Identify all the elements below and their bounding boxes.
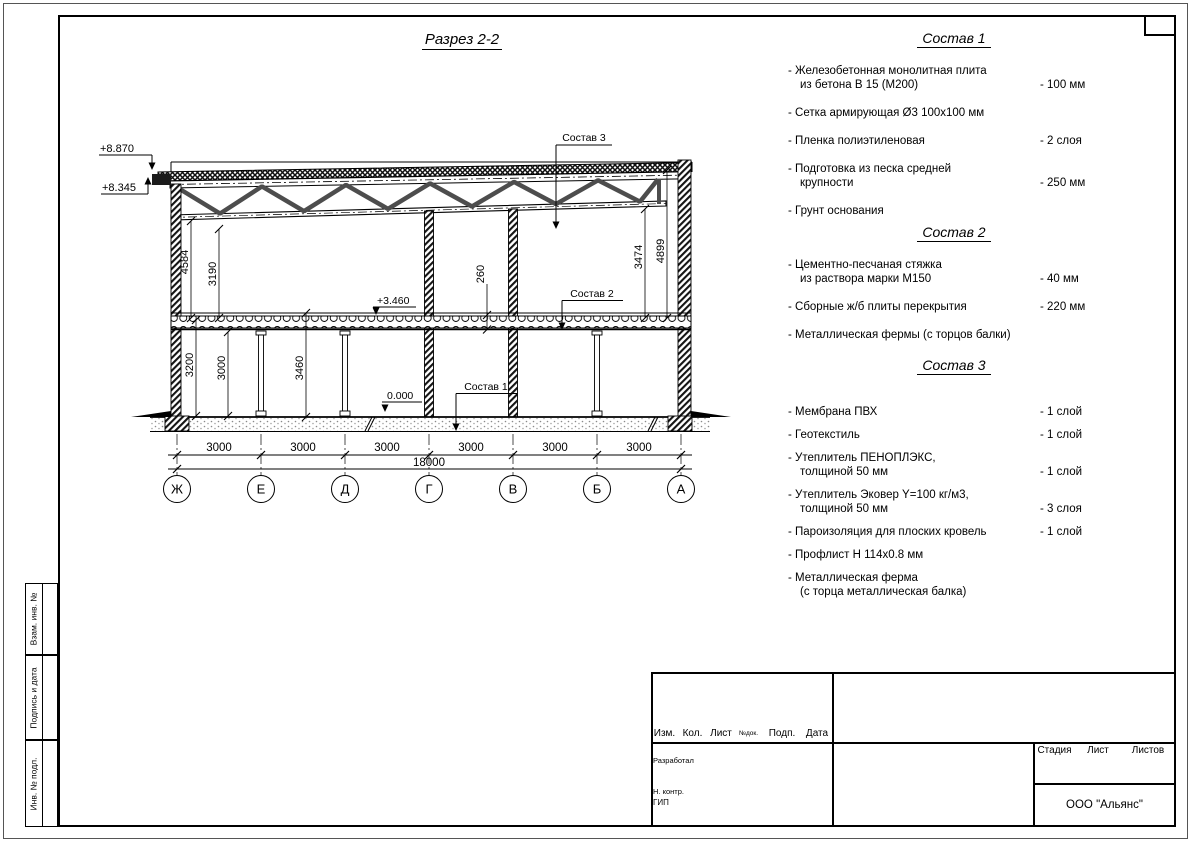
elevation-3460: +3.460 bbox=[377, 295, 410, 307]
span-dim: 3000 bbox=[458, 442, 484, 454]
total-span-dim: 18000 bbox=[413, 457, 445, 469]
drawing-sheet: Разрез 2-2 bbox=[0, 0, 1191, 842]
axis-label: Ж bbox=[171, 482, 183, 497]
dim-3000: 3000 bbox=[216, 356, 228, 380]
list-item: - Цементно-песчаная стяжкаиз раствора ма… bbox=[788, 258, 1120, 286]
list-item: - Сетка армирующая Ø3 100х100 мм bbox=[788, 106, 1120, 120]
span-dim: 3000 bbox=[290, 442, 316, 454]
span-dim: 3000 bbox=[542, 442, 568, 454]
list-item: - Подготовка из песка среднейкрупности -… bbox=[788, 162, 1120, 190]
list-item: - Грунт основания bbox=[788, 204, 1120, 218]
side-strip-label: Подпись и дата bbox=[25, 655, 42, 740]
composition-3: Состав 3 - Мембрана ПВХ - 1 слой - Геоте… bbox=[788, 357, 1120, 608]
sheets-col: Листов bbox=[1120, 742, 1176, 758]
rev-col-ndok: №док. bbox=[735, 725, 762, 742]
rev-col-podp: Подп. bbox=[762, 725, 802, 742]
composition-2: Состав 2 - Цементно-песчаная стяжкаиз ра… bbox=[788, 224, 1120, 356]
composition-1-title: Состав 1 bbox=[788, 30, 1120, 48]
list-item: - Утеплитель Эковер Y=100 кг/м3,толщиной… bbox=[788, 488, 1120, 516]
axis-label: Г bbox=[425, 482, 432, 497]
axis-label: Д bbox=[341, 482, 350, 497]
elevation-8870: +8.870 bbox=[100, 143, 134, 155]
axis-label: В bbox=[509, 482, 518, 497]
composition-3-title: Состав 3 bbox=[788, 357, 1120, 375]
list-item: - Пароизоляция для плоских кровель - 1 с… bbox=[788, 525, 1120, 539]
list-item: - Металлическая фермы (с торцов балки) bbox=[788, 328, 1120, 342]
company-name: ООО "Альянс" bbox=[1033, 784, 1176, 826]
composition-1: Состав 1 - Железобетонная монолитная пли… bbox=[788, 30, 1120, 232]
dim-3190: 3190 bbox=[207, 262, 219, 286]
side-strip-label: Инв. № подл. bbox=[25, 740, 42, 827]
axis-label: Б bbox=[593, 482, 602, 497]
list-item: - Профлист Н 114х0.8 мм bbox=[788, 548, 1120, 562]
rev-col-kol: Кол. bbox=[678, 725, 707, 742]
elevation-0000: 0.000 bbox=[387, 390, 413, 402]
span-dim: 3000 bbox=[206, 442, 232, 454]
list-item: - Сборные ж/б плиты перекрытия - 220 мм bbox=[788, 300, 1120, 314]
list-item: - Пленка полиэтиленовая - 2 слоя bbox=[788, 134, 1120, 148]
list-item: - Утеплитель ПЕНОПЛЭКС,толщиной 50 мм - … bbox=[788, 451, 1120, 479]
role-gip: ГИП bbox=[653, 797, 705, 808]
sheet-col: Лист bbox=[1076, 742, 1120, 758]
list-item: - Железобетонная монолитная плитаиз бето… bbox=[788, 64, 1120, 92]
role-developer: Разработал bbox=[653, 753, 705, 767]
list-item: - Геотекстиль - 1 слой bbox=[788, 428, 1120, 442]
dim-3474: 3474 bbox=[633, 245, 645, 269]
list-item: - Металлическая ферма(с торца металличес… bbox=[788, 571, 1120, 599]
elevation-8345: +8.345 bbox=[102, 182, 136, 194]
role-ncontrol: Н. контр. bbox=[653, 786, 705, 797]
axis-label: Е bbox=[257, 482, 266, 497]
dim-260: 260 bbox=[475, 265, 487, 283]
list-item: - Мембрана ПВХ - 1 слой bbox=[788, 405, 1120, 419]
leader-sostav3: Состав 3 bbox=[562, 132, 606, 144]
rev-col-data: Дата bbox=[802, 725, 832, 742]
stage-col: Стадия bbox=[1033, 742, 1076, 758]
side-strip-label: Взам. инв. № bbox=[25, 583, 42, 655]
leader-sostav1: Состав 1 bbox=[464, 381, 508, 393]
dim-3200: 3200 bbox=[184, 353, 196, 377]
dim-4899: 4899 bbox=[655, 239, 667, 263]
span-dim: 3000 bbox=[626, 442, 652, 454]
span-dim: 3000 bbox=[374, 442, 400, 454]
rev-col-izm: Изм. bbox=[651, 725, 678, 742]
leader-sostav2: Состав 2 bbox=[570, 288, 614, 300]
dim-3460: 3460 bbox=[294, 356, 306, 380]
dim-4584: 4584 bbox=[179, 250, 191, 274]
rev-col-list: Лист bbox=[707, 725, 735, 742]
axis-bubbles: Ж Е Д Г В Б А bbox=[164, 476, 695, 503]
composition-2-title: Состав 2 bbox=[788, 224, 1120, 242]
axis-label: А bbox=[677, 482, 686, 497]
axis-dimension-chain: 3000 3000 3000 3000 3000 3000 18000 bbox=[168, 434, 692, 475]
